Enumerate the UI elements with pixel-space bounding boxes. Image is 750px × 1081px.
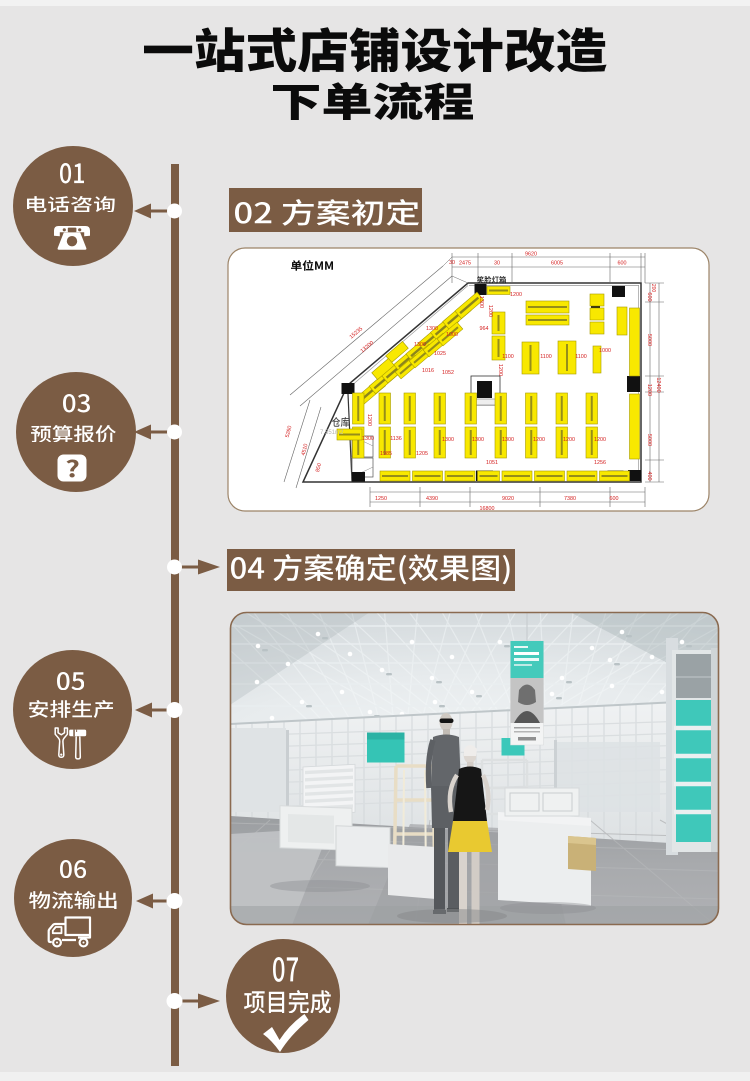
svg-text:5000: 5000: [646, 434, 652, 446]
svg-text:600: 600: [618, 261, 627, 267]
svg-text:1200: 1200: [646, 384, 652, 396]
svg-text:1200: 1200: [487, 305, 493, 317]
svg-text:7380: 7380: [564, 496, 576, 502]
svg-text:1200: 1200: [594, 437, 606, 443]
svg-text:1051: 1051: [486, 460, 498, 466]
svg-text:1136: 1136: [390, 436, 402, 442]
svg-text:2475: 2475: [459, 261, 471, 267]
svg-text:1000: 1000: [599, 348, 611, 354]
svg-text:1205: 1205: [416, 451, 428, 457]
svg-text:6005: 6005: [551, 261, 563, 267]
svg-text:1300: 1300: [502, 437, 514, 443]
svg-text:600: 600: [610, 496, 619, 502]
svg-text:1256: 1256: [594, 460, 606, 466]
svg-text:1052: 1052: [442, 370, 454, 376]
svg-text:1025: 1025: [434, 351, 446, 357]
svg-text:200: 200: [650, 284, 656, 293]
svg-text:400: 400: [646, 471, 652, 480]
svg-text:5000: 5000: [646, 334, 652, 346]
svg-text:1016: 1016: [422, 368, 434, 374]
svg-text:1100: 1100: [540, 354, 552, 360]
svg-text:1300: 1300: [478, 296, 484, 308]
svg-text:1200: 1200: [497, 364, 503, 376]
svg-text:1250: 1250: [375, 496, 387, 502]
svg-text:30: 30: [449, 260, 455, 266]
svg-text:1200: 1200: [563, 437, 575, 443]
svg-text:7.551m2: 7.551m2: [320, 430, 344, 436]
svg-text:1300: 1300: [442, 437, 454, 443]
svg-text:1300: 1300: [472, 437, 484, 443]
svg-text:1200: 1200: [533, 437, 545, 443]
svg-text:1000: 1000: [446, 332, 458, 338]
svg-text:1300: 1300: [414, 342, 426, 348]
svg-text:1300: 1300: [426, 326, 438, 332]
svg-text:1985: 1985: [380, 451, 392, 457]
svg-text:12400: 12400: [655, 377, 661, 392]
svg-text:1100: 1100: [502, 354, 514, 360]
svg-text:1300: 1300: [362, 436, 374, 442]
svg-text:1100: 1100: [575, 354, 587, 360]
svg-text:9020: 9020: [502, 496, 514, 502]
svg-text:9620: 9620: [525, 252, 537, 258]
svg-text:1200: 1200: [366, 414, 372, 426]
svg-text:964: 964: [480, 326, 489, 332]
svg-text:30: 30: [494, 261, 500, 267]
svg-text:600: 600: [646, 292, 652, 301]
svg-text:4390: 4390: [426, 496, 438, 502]
svg-text:1200: 1200: [510, 292, 522, 298]
svg-text:16800: 16800: [480, 506, 495, 512]
